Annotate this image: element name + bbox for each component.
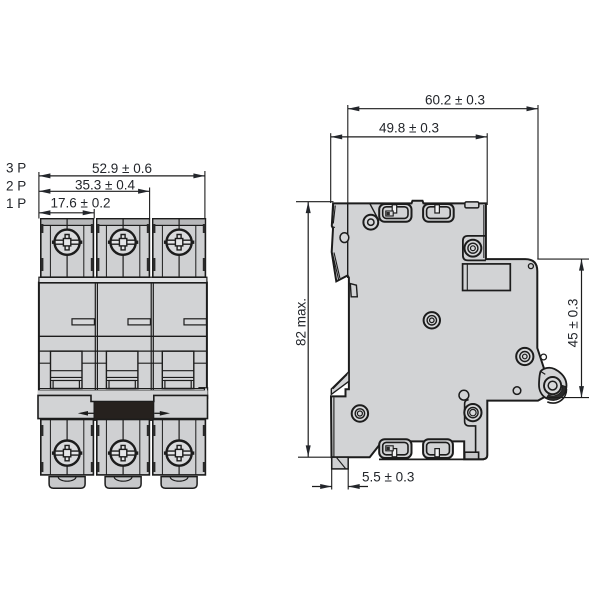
svg-text:60.2 ± 0.3: 60.2 ± 0.3: [425, 93, 485, 108]
svg-text:1 P: 1 P: [6, 196, 26, 211]
svg-text:52.9 ± 0.6: 52.9 ± 0.6: [92, 161, 152, 176]
svg-text:49.8 ± 0.3: 49.8 ± 0.3: [379, 120, 439, 135]
svg-text:2 P: 2 P: [6, 179, 26, 194]
svg-text:17.6 ± 0.2: 17.6 ± 0.2: [51, 195, 111, 210]
svg-text:45 ± 0.3: 45 ± 0.3: [566, 299, 581, 348]
svg-text:35.3 ± 0.4: 35.3 ± 0.4: [75, 178, 135, 193]
svg-text:82 max.: 82 max.: [294, 298, 309, 346]
svg-text:5.5 ± 0.3: 5.5 ± 0.3: [362, 469, 414, 484]
svg-text:3 P: 3 P: [6, 161, 26, 176]
